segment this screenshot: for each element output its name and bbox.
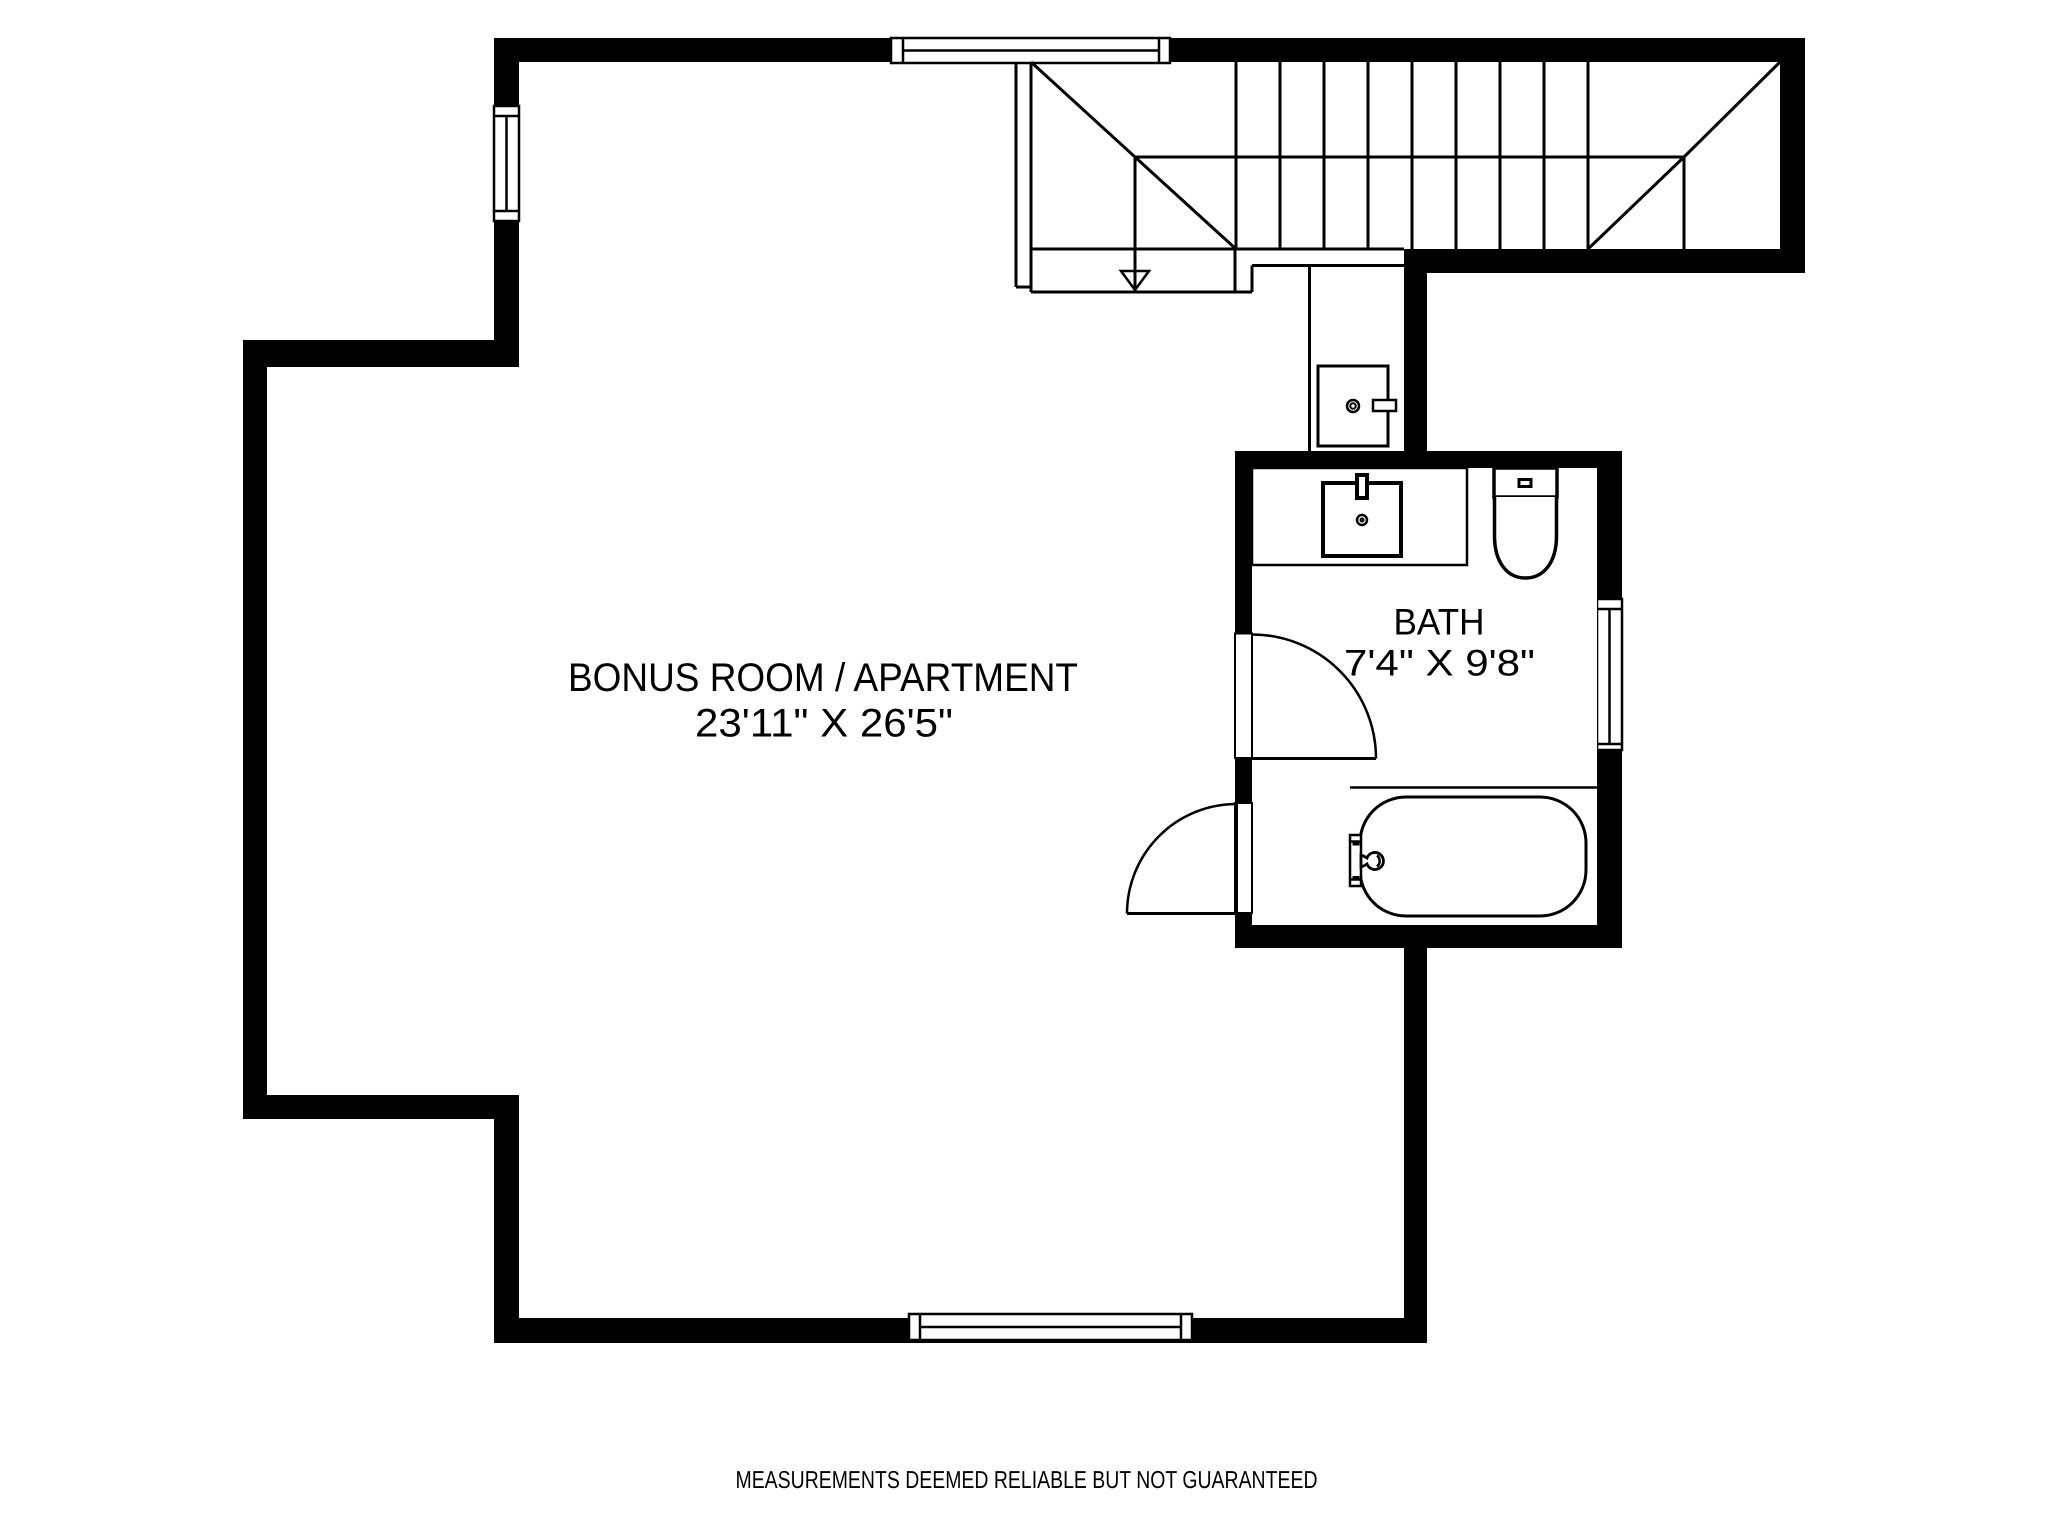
- svg-text:MEASUREMENTS DEEMED RELIABLE B: MEASUREMENTS DEEMED RELIABLE BUT NOT GUA…: [736, 1467, 1318, 1494]
- svg-text:BATH: BATH: [1394, 602, 1485, 643]
- svg-text:7'4" X 9'8": 7'4" X 9'8": [1344, 643, 1535, 684]
- svg-text:BONUS ROOM / APARTMENT: BONUS ROOM / APARTMENT: [568, 656, 1078, 700]
- svg-text:23'11" X 26'5": 23'11" X 26'5": [695, 702, 953, 746]
